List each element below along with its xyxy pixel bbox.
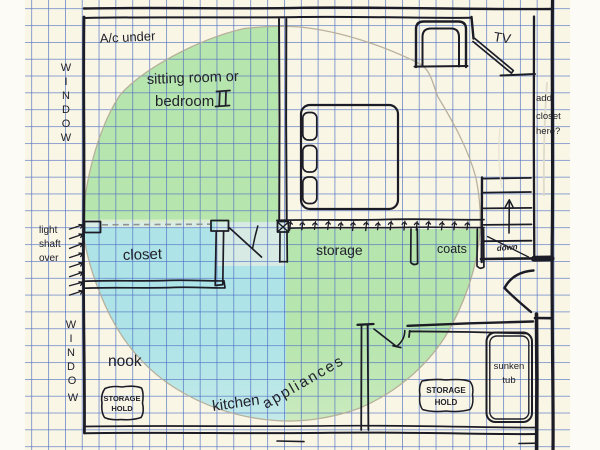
svg-text:D: D — [67, 361, 75, 373]
svg-text:D: D — [62, 104, 70, 116]
svg-text:O: O — [68, 375, 77, 387]
svg-text:I: I — [64, 76, 67, 88]
svg-text:W: W — [61, 132, 72, 144]
svg-text:over: over — [39, 253, 59, 264]
svg-text:add: add — [536, 93, 552, 104]
svg-text:sitting room or: sitting room or — [147, 69, 240, 88]
svg-text:W: W — [61, 62, 72, 74]
svg-text:down: down — [496, 242, 518, 253]
svg-text:closet: closet — [123, 246, 164, 264]
svg-text:closet: closet — [536, 111, 561, 122]
svg-text:W: W — [66, 319, 77, 331]
svg-text:coats: coats — [437, 242, 467, 256]
svg-text:A/c under: A/c under — [99, 28, 156, 46]
svg-text:tub: tub — [502, 375, 515, 386]
svg-text:storage: storage — [316, 242, 363, 258]
svg-text:shaft: shaft — [39, 239, 61, 250]
svg-text:STORAGE: STORAGE — [426, 386, 466, 395]
svg-text:HOLD: HOLD — [111, 404, 133, 413]
svg-text:O: O — [62, 118, 71, 130]
svg-text:here?: here? — [536, 126, 560, 137]
svg-text:N: N — [62, 90, 70, 102]
svg-text:light: light — [39, 225, 58, 236]
svg-text:bedroom: bedroom — [155, 93, 214, 110]
svg-text:HOLD: HOLD — [435, 398, 458, 407]
svg-text:N: N — [67, 347, 75, 359]
svg-text:I: I — [69, 333, 72, 345]
svg-text:W: W — [68, 392, 79, 404]
svg-text:nook: nook — [108, 353, 142, 370]
svg-text:STORAGE: STORAGE — [104, 394, 141, 403]
svg-text:TV: TV — [493, 29, 512, 47]
svg-text:sunken: sunken — [494, 361, 525, 372]
